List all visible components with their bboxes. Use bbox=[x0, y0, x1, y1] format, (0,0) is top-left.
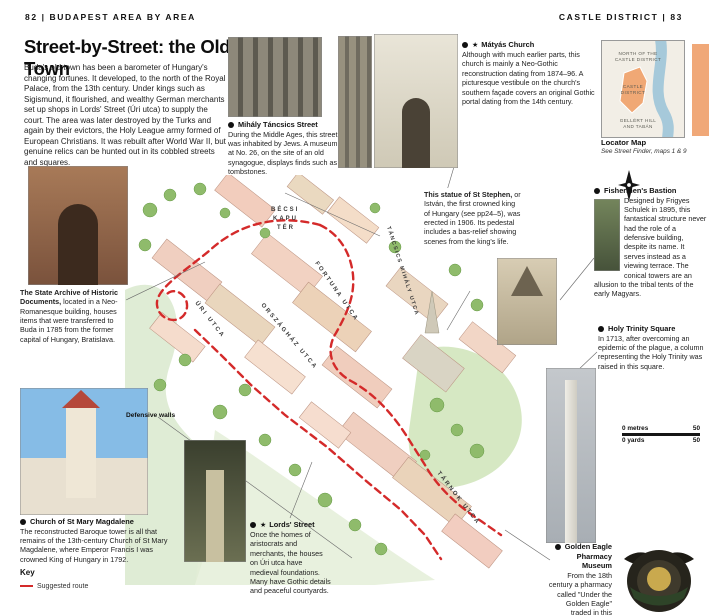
scale-metres-label: 0 metres bbox=[622, 425, 648, 432]
locator-label-north-1: NORTH OF THE bbox=[618, 51, 657, 56]
caption-body: From the 18th century a pharmacy called … bbox=[549, 571, 612, 616]
caption-title: Holy Trinity Square bbox=[608, 324, 675, 333]
caption-title: Church of St Mary Magdalene bbox=[30, 517, 134, 526]
street-label-becsi-1: BÉCSI bbox=[271, 205, 299, 213]
locator-label-gellert-1: GELLÉRT HILL bbox=[620, 117, 657, 123]
street-label-tancsics: TÁNCSICS MIHÁLY UTCA bbox=[385, 225, 421, 316]
star-icon: ★ bbox=[472, 42, 478, 49]
street-label-becsi-2: KAPU bbox=[273, 216, 298, 222]
photo-holy-trinity-column bbox=[546, 368, 596, 543]
photo-st-mary-magdalene bbox=[20, 388, 148, 515]
magdalene-tower-shape bbox=[66, 406, 96, 498]
caption-title: Mátyás Church bbox=[481, 40, 534, 49]
key-suggested-route: Suggested route bbox=[20, 583, 88, 590]
star-icon: ★ bbox=[260, 522, 266, 529]
scale-metres-value: 50 bbox=[693, 425, 700, 432]
photo-tombstones bbox=[228, 37, 322, 117]
sight-bullet bbox=[228, 122, 234, 128]
book-spread: 82 | BUDAPEST AREA BY AREA CASTLE DISTRI… bbox=[0, 0, 709, 616]
caption-title: Golden Eagle Pharmacy Museum bbox=[565, 542, 612, 570]
caption-body: Although with much earlier parts, this c… bbox=[462, 50, 595, 106]
caption-lead: This statue of St Stephen, bbox=[424, 190, 512, 199]
courtyard-path-shape bbox=[206, 470, 224, 562]
page-header-right: CASTLE DISTRICT | 83 bbox=[559, 12, 683, 22]
caption-golden-eagle: Golden Eagle Pharmacy Museum From the 18… bbox=[548, 542, 612, 616]
caption-body: The reconstructed Baroque tower is all t… bbox=[20, 527, 167, 564]
archive-arch-shape bbox=[58, 204, 98, 285]
caption-st-stephen: This statue of St Stephen, or István, th… bbox=[421, 188, 525, 248]
photo-state-archive bbox=[28, 166, 128, 285]
defensive-walls-label: Defensive walls bbox=[126, 412, 175, 419]
caption-body-wrap: Designed by Frigyes Schulek in 1895, thi… bbox=[594, 196, 707, 299]
caption-fishermens-bastion: Fishermen's Bastion Designed by Frigyes … bbox=[594, 186, 707, 299]
key-route-label: Suggested route bbox=[37, 583, 88, 590]
key-title: Key bbox=[20, 568, 35, 577]
sight-bullet bbox=[20, 519, 26, 525]
scale-yards-value: 50 bbox=[693, 437, 700, 444]
caption-tancsics: Mihály Táncsics Street During the Middle… bbox=[228, 120, 344, 176]
sight-bullet bbox=[594, 188, 600, 194]
caption-body: In 1713, after overcoming an epidemic of… bbox=[598, 334, 703, 371]
column-shape bbox=[565, 380, 577, 543]
caption-body: During the Middle Ages, this street was … bbox=[228, 130, 337, 176]
locator-label-north-2: CASTLE DISTRICT bbox=[615, 57, 661, 62]
locator-subtitle: See Street Finder, maps 1 & 9 bbox=[601, 148, 687, 155]
locator-label-castle-1: CASTLE bbox=[623, 84, 643, 89]
caption-body: Once the homes of aristocrats and mercha… bbox=[250, 530, 331, 595]
caption-holy-trinity: Holy Trinity Square In 1713, after overc… bbox=[598, 324, 706, 371]
route-dash-swatch bbox=[20, 585, 33, 587]
church-portal-shape bbox=[402, 98, 430, 168]
sight-bullet bbox=[462, 42, 468, 48]
photo-lords-street-courtyard bbox=[184, 440, 246, 562]
locator-label-gellert-2: AND TABÁN bbox=[623, 123, 652, 129]
caption-lords-street: ★ Lords' Street Once the homes of aristo… bbox=[250, 520, 332, 596]
locator-map-svg: NORTH OF THE CASTLE DISTRICT CASTLE DIST… bbox=[602, 41, 684, 137]
scale-bar: 0 metres 50 0 yards 50 bbox=[622, 424, 700, 445]
caption-state-archive: The State Archive of Historic Documents,… bbox=[20, 288, 132, 344]
locator-title: Locator Map bbox=[601, 138, 646, 147]
magdalene-roof-shape bbox=[62, 390, 100, 408]
locator-map: NORTH OF THE CASTLE DISTRICT CASTLE DIST… bbox=[601, 40, 685, 138]
locator-label-castle-2: DISTRICT bbox=[621, 90, 645, 95]
caption-magdalene: Church of St Mary Magdalene The reconstr… bbox=[20, 517, 172, 564]
golden-eagle-crest bbox=[616, 541, 702, 614]
scale-yards-row: 0 yards 50 bbox=[622, 436, 700, 445]
page-header-left: 82 | BUDAPEST AREA BY AREA bbox=[25, 12, 196, 22]
sight-bullet bbox=[598, 326, 604, 332]
caption-title: Mihály Táncsics Street bbox=[238, 120, 318, 129]
photo-bastion-inline bbox=[594, 199, 620, 271]
street-label-becsi-3: TÉR bbox=[277, 223, 295, 231]
scale-yards-label: 0 yards bbox=[622, 437, 644, 444]
photo-fishermens-bastion-tower bbox=[497, 258, 557, 345]
caption-title: Fishermen's Bastion bbox=[604, 186, 676, 195]
intro-text: Buda's old town has been a barometer of … bbox=[24, 63, 226, 168]
caption-matyas: ★ Mátyás Church Although with much earli… bbox=[462, 40, 598, 106]
thumb-tab bbox=[692, 44, 709, 136]
sight-bullet bbox=[555, 544, 561, 550]
sight-bullet bbox=[250, 522, 256, 528]
caption-title: Lords' Street bbox=[269, 520, 314, 529]
scale-metres-row: 0 metres 50 bbox=[622, 424, 700, 433]
tower-cone-shape bbox=[511, 266, 543, 296]
photo-matyas-church bbox=[374, 34, 458, 168]
